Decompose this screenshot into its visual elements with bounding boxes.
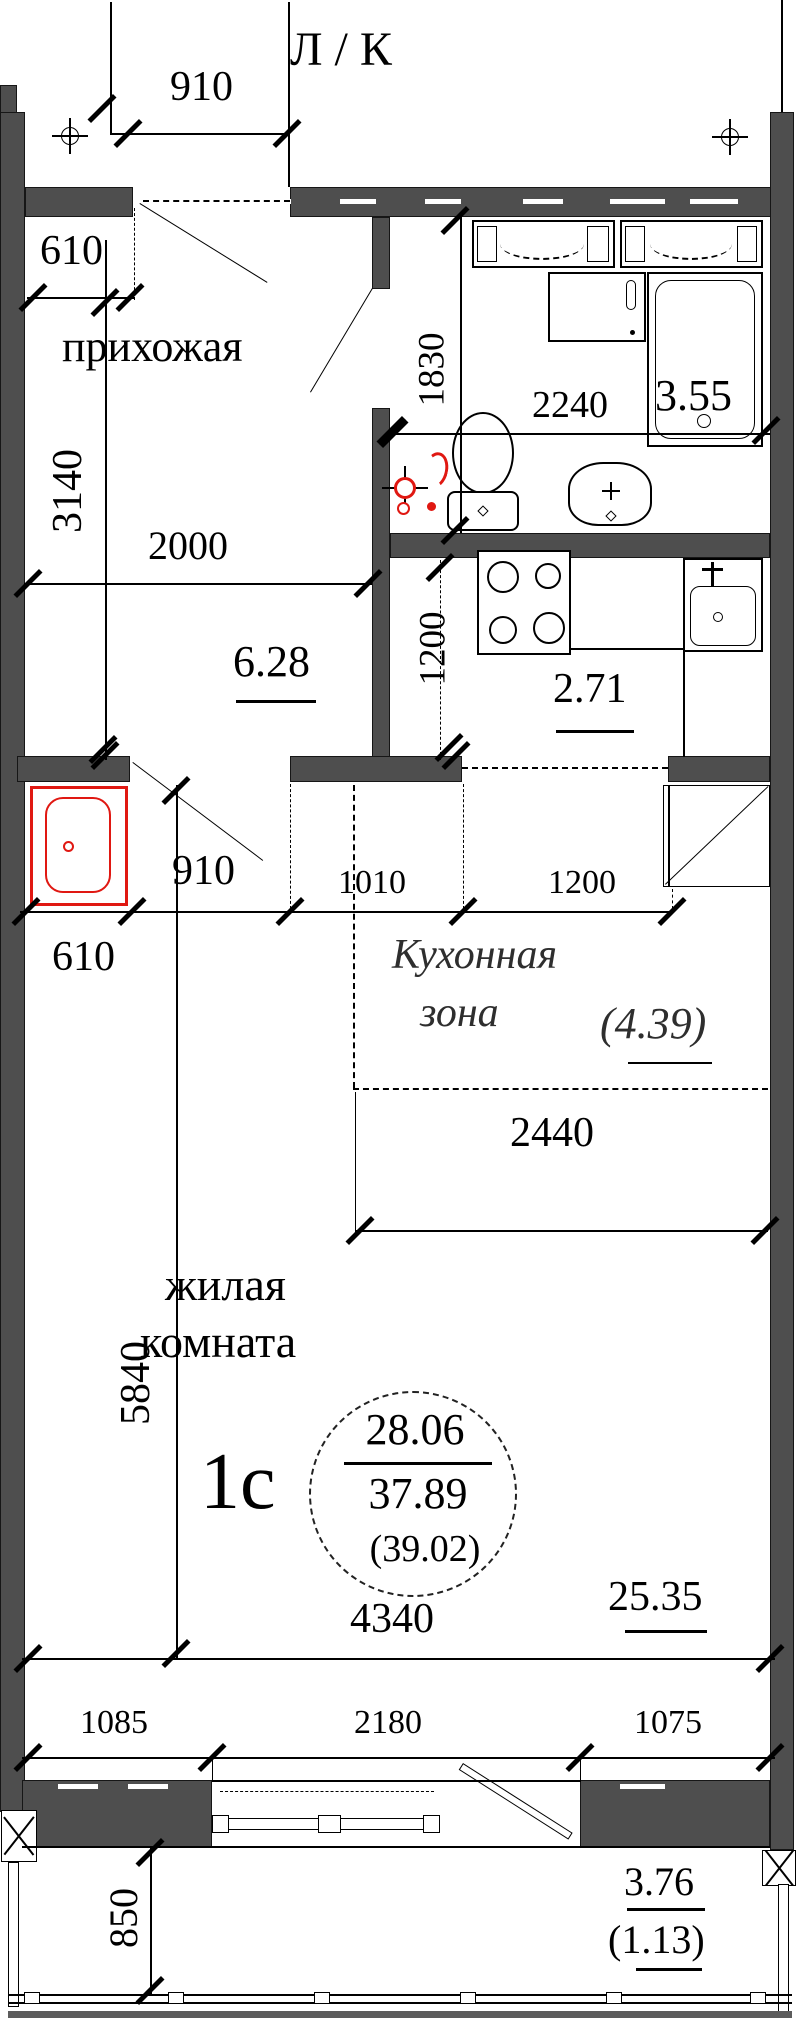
ext-line — [580, 1758, 581, 1782]
riser-symbol-red — [397, 502, 410, 515]
wall-left-outer-top — [0, 85, 17, 115]
dim-line-5840 — [176, 785, 178, 1658]
dim-1085: 1085 — [80, 1706, 148, 1740]
wall-dash — [523, 199, 563, 204]
dim-1075: 1075 — [634, 1706, 702, 1740]
dim-line-910-top — [110, 133, 288, 135]
area-balcony-reduced: (1.13) — [608, 1920, 705, 1960]
window-mullion — [318, 1815, 341, 1833]
window-outer-dashes — [220, 1791, 434, 1792]
window-mullion — [212, 1815, 229, 1833]
dim-line-3140 — [105, 240, 107, 760]
wall-dash — [128, 1784, 168, 1789]
underline — [625, 1630, 707, 1633]
counter-edge — [683, 650, 685, 757]
balcony-rail — [8, 2002, 792, 2004]
kitchen-zone-opening — [462, 767, 668, 769]
balcony-door-leaf — [459, 1763, 573, 1840]
kitchen-zone-boundary — [353, 1088, 768, 1090]
dim-line-610-top — [27, 297, 134, 299]
washbasin — [568, 462, 652, 526]
underline — [236, 700, 316, 703]
fraction-line — [344, 1462, 492, 1465]
ext-dash — [290, 784, 291, 909]
window-outer-face — [212, 1780, 580, 1782]
balcony-post — [750, 1992, 766, 2004]
wall-mid-a — [17, 756, 130, 782]
wall-dash — [610, 199, 665, 204]
area-bathroom: 3.55 — [655, 374, 732, 418]
area-kitchen: 2.71 — [553, 668, 627, 710]
ext-line — [355, 1092, 356, 1230]
entry-door-opening — [143, 200, 290, 202]
balcony-rail — [8, 1994, 792, 1996]
riser-symbol-red — [394, 477, 416, 499]
stove — [477, 550, 571, 655]
bathtub — [647, 272, 763, 447]
wall-dash — [340, 199, 376, 204]
area-hallway: 6.28 — [233, 640, 310, 684]
dim-line-850 — [150, 1847, 152, 1995]
dim-2000: 2000 — [148, 526, 228, 566]
wall-bottom-left — [22, 1780, 212, 1847]
wall-dash — [425, 199, 461, 204]
dim-2180: 2180 — [354, 1706, 422, 1740]
balcony-post — [606, 1992, 622, 2004]
wall-dash — [690, 199, 738, 204]
ext-line — [110, 2, 112, 133]
shaft-edge — [668, 785, 670, 887]
apartment-total-area: 37.89 — [345, 1472, 491, 1516]
kitchen-zone-boundary — [353, 785, 355, 1088]
balcony-post — [314, 1992, 330, 2004]
wall-hall-bath — [372, 408, 390, 758]
underline — [628, 1062, 712, 1064]
counter-line — [571, 648, 685, 650]
dim-line-mid-row — [20, 911, 672, 913]
dim-line-2440 — [355, 1230, 768, 1232]
apartment-total-with-balcony: (39.02) — [358, 1530, 492, 1568]
pier-hatched-left — [1, 1810, 37, 1862]
dim-1200-kitchen: 1200 — [415, 599, 452, 699]
riser-arc-red — [421, 450, 452, 490]
ext-dash — [463, 784, 464, 909]
dim-1010: 1010 — [338, 866, 406, 900]
dim-line-2240 — [390, 433, 770, 435]
washing-machine — [548, 272, 646, 342]
room-living-label-2: комната — [140, 1319, 296, 1365]
dim-850: 850 — [104, 1868, 144, 1968]
pier-hatched-right — [762, 1850, 796, 1886]
window-sill — [22, 1846, 770, 1848]
apartment-living-area: 28.06 — [342, 1408, 488, 1452]
dim-610-mid: 610 — [52, 936, 115, 978]
balcony-post — [460, 1992, 476, 2004]
room-hallway-label: прихожая — [62, 325, 243, 369]
underline — [636, 1968, 702, 1971]
window-mullion — [423, 1815, 440, 1833]
dim-1200-mid: 1200 — [548, 866, 616, 900]
dim-610-top: 610 — [40, 230, 103, 272]
balcony-rail-band — [8, 2011, 792, 2018]
entry-door-swing — [139, 203, 267, 283]
balcony-post — [168, 1992, 184, 2004]
red-bathtub — [30, 786, 128, 906]
wall-bottom-right — [580, 1780, 770, 1847]
dim-line-2000 — [24, 583, 372, 585]
dim-1830: 1830 — [414, 315, 451, 425]
room-living-label-1: жилая — [165, 1262, 286, 1308]
wall-dash — [620, 1784, 665, 1789]
ext-dash — [134, 208, 135, 300]
dim-910-mid: 910 — [172, 850, 235, 892]
area-balcony: 3.76 — [624, 1862, 694, 1902]
wall-top-left — [25, 187, 133, 217]
balcony-post — [24, 1992, 40, 2004]
bathroom-door-swing — [310, 288, 373, 392]
kitchen-sink — [683, 558, 763, 652]
hall-door-swing — [132, 762, 263, 861]
wall-dash — [58, 1784, 98, 1789]
wall-right-outer — [770, 112, 794, 1850]
area-kitchen-zone: (4.39) — [600, 1002, 706, 1046]
kitchen-zone-label-1: Кухонная — [392, 934, 557, 976]
underline — [556, 730, 634, 733]
floor-plan: Л / К 910 610 прихожая 3140 2000 1830 22… — [0, 0, 800, 2019]
kitchen-zone-label-2: зона — [420, 992, 499, 1034]
wall-mid-c — [668, 756, 770, 782]
dim-5840: 5840 — [115, 1318, 157, 1448]
ext-line — [212, 1758, 213, 1782]
axis-marker-icon — [52, 118, 88, 154]
dim-2440: 2440 — [510, 1112, 594, 1154]
dim-line-4340 — [22, 1658, 775, 1660]
bath-cabinet — [472, 220, 615, 268]
dim-2240: 2240 — [532, 386, 608, 424]
dim-3140: 3140 — [47, 431, 89, 551]
header-lk: Л / К — [290, 26, 392, 74]
dim-910-top: 910 — [170, 66, 233, 108]
dim-4340: 4340 — [350, 1598, 434, 1640]
dim-line-bottom-row — [22, 1757, 775, 1759]
wall-hall-bath-stub — [372, 217, 390, 289]
dim-tick — [88, 94, 117, 123]
wall-left-outer — [0, 112, 25, 1812]
apartment-type: 1с — [200, 1442, 276, 1522]
dim-line-1830 — [460, 217, 462, 533]
balcony-wall-left — [8, 1862, 19, 2007]
bath-cabinet — [620, 220, 763, 268]
area-living-room: 25.35 — [608, 1576, 703, 1618]
ext-line — [781, 0, 783, 112]
axis-marker-icon — [712, 119, 748, 155]
riser-dot-red — [427, 502, 436, 511]
underline — [627, 1908, 705, 1911]
